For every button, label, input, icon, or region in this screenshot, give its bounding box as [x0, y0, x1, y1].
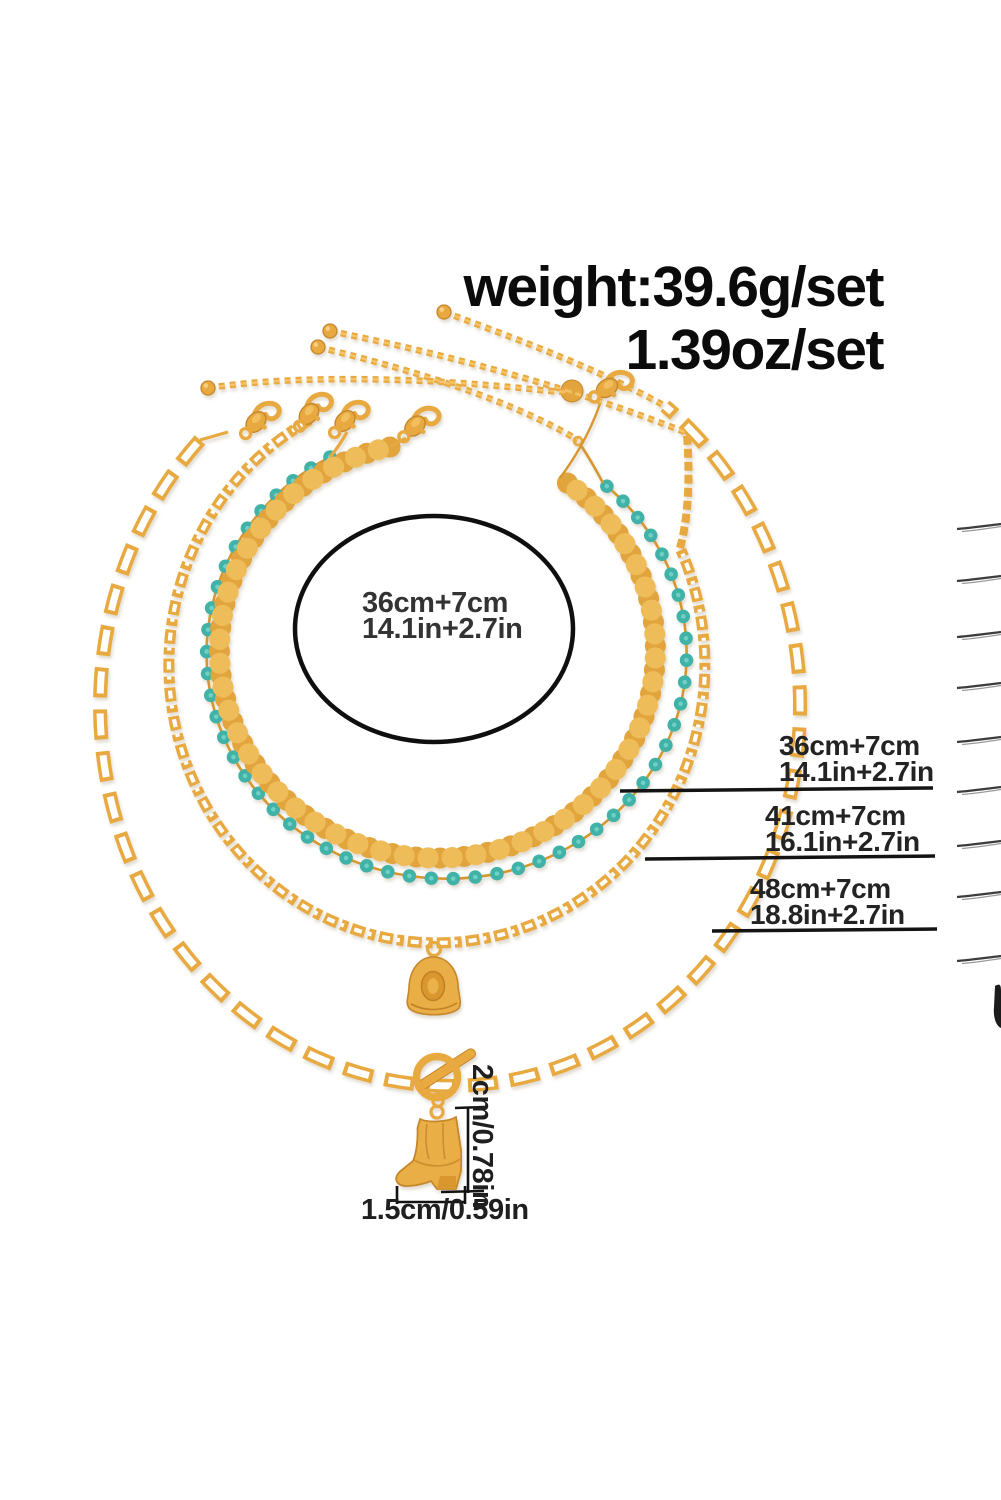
cowboy-boot-pendant: [396, 1106, 461, 1189]
chain-length-label-36cm: 36cm+7cm 14.1in+2.7in: [779, 733, 934, 785]
length-inch: 14.1in+2.7in: [779, 759, 934, 785]
edge-mark: [957, 683, 1001, 691]
weight-ounces: 1.39oz/set: [464, 319, 883, 382]
lobster-clasp: [290, 388, 335, 437]
necklace-measurement-image: weight:39.6g/set 1.39oz/set 36cm+7cm 14.…: [0, 0, 1001, 1500]
pendant-width-label: 1.5cm/0.59in: [361, 1197, 529, 1223]
ball-chain-end: [437, 305, 451, 319]
edge-mark: [957, 787, 1001, 795]
photo-edge-marks: [957, 524, 1001, 1028]
edge-mark: [957, 576, 1001, 584]
chain-length-label-41cm: 41cm+7cm 16.1in+2.7in: [765, 803, 920, 855]
ball-chain-end: [201, 381, 215, 395]
ball-chain-end: [311, 340, 325, 354]
ball-chain-end: [323, 324, 337, 338]
edge-mark: [957, 632, 1001, 640]
edge-blob-mark: [994, 985, 1001, 1028]
edge-mark: [957, 737, 1001, 745]
inner-size-inch: 14.1in+2.7in: [362, 616, 522, 642]
cowboy-hat-pendant: [407, 943, 460, 1015]
edge-mark: [957, 956, 1001, 964]
edge-mark: [957, 892, 1001, 900]
lobster-clasp: [394, 402, 442, 449]
inner-size-label: 36cm+7cm 14.1in+2.7in: [362, 590, 522, 642]
edge-mark: [957, 524, 1001, 532]
edge-mark: [957, 841, 1001, 849]
weight-text: weight:39.6g/set 1.39oz/set: [464, 256, 883, 382]
length-inch: 18.8in+2.7in: [750, 902, 905, 928]
chain-length-label-48cm: 48cm+7cm 18.8in+2.7in: [750, 876, 905, 928]
callout-line-36cm: [620, 788, 933, 791]
pendant-height-label: 2cm/0.78in: [469, 1064, 495, 1208]
length-inch: 16.1in+2.7in: [765, 829, 920, 855]
weight-grams: weight:39.6g/set: [464, 256, 883, 319]
